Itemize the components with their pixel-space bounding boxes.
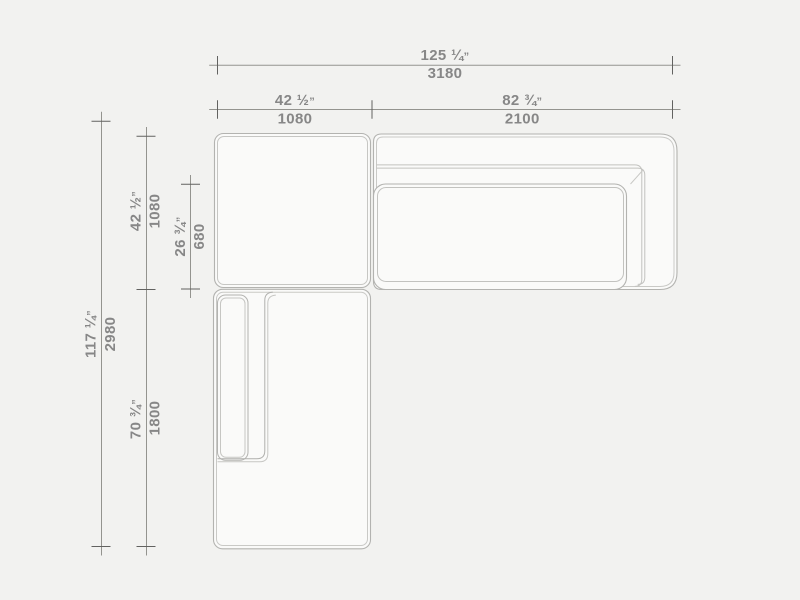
svg-text:3180: 3180: [428, 65, 463, 82]
svg-text:2100: 2100: [505, 110, 540, 127]
svg-text:1800: 1800: [146, 401, 163, 436]
svg-text:1080: 1080: [278, 110, 313, 127]
svg-text:2980: 2980: [102, 317, 119, 352]
svg-text:70 ¾”: 70 ¾”: [127, 399, 144, 439]
svg-text:1080: 1080: [146, 194, 163, 229]
svg-text:680: 680: [191, 223, 208, 249]
svg-text:82 ¾”: 82 ¾”: [502, 92, 542, 109]
svg-text:26 ¾”: 26 ¾”: [172, 216, 189, 256]
svg-text:117 ¼”: 117 ¼”: [82, 310, 99, 358]
svg-text:42 ½”: 42 ½”: [275, 92, 315, 109]
svg-text:42 ½”: 42 ½”: [127, 191, 144, 231]
svg-text:125 ¼”: 125 ¼”: [421, 47, 470, 64]
